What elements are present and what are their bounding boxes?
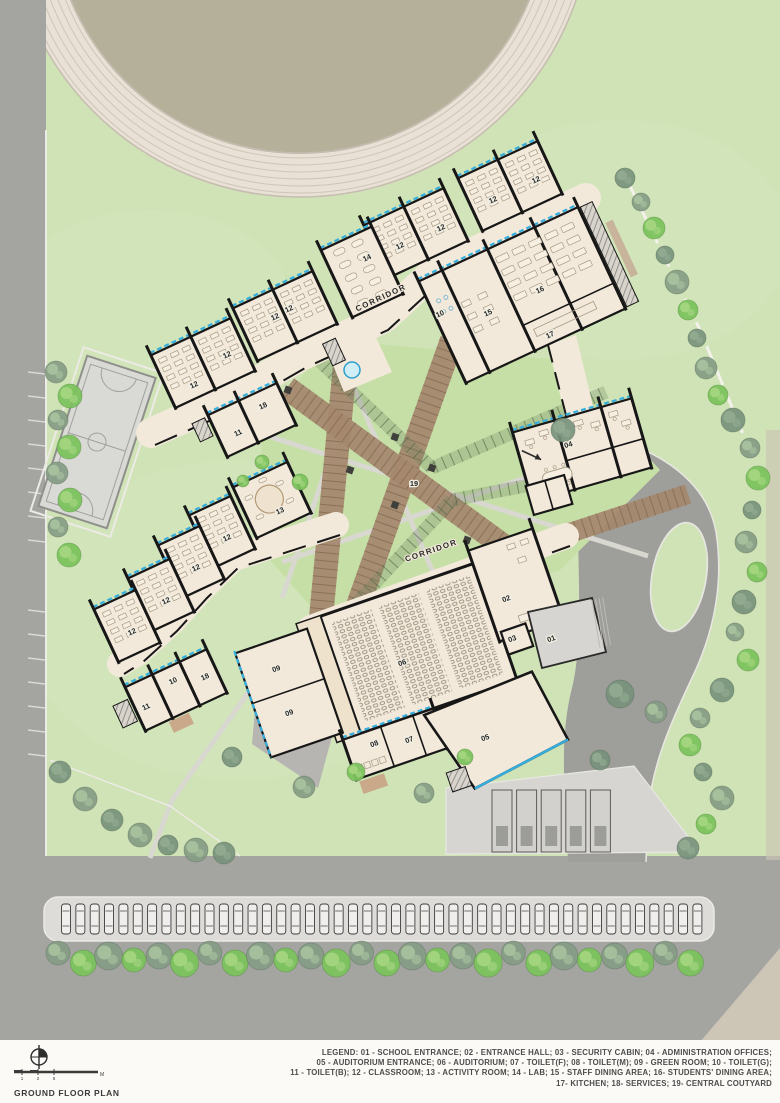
tree bbox=[374, 950, 400, 976]
car-body bbox=[592, 904, 601, 934]
tree-highlight bbox=[589, 959, 597, 967]
car-body bbox=[535, 904, 544, 934]
tree bbox=[708, 385, 728, 405]
car-body bbox=[90, 904, 99, 934]
car bbox=[621, 904, 630, 934]
car bbox=[435, 904, 444, 934]
legend-line: 11 - TOILET(B); 12 - CLASSROOM; 13 - ACT… bbox=[290, 1068, 772, 1078]
car bbox=[334, 904, 343, 934]
car-body bbox=[578, 904, 587, 934]
tree bbox=[45, 361, 67, 383]
car-body bbox=[521, 904, 530, 934]
car bbox=[650, 904, 659, 934]
tree-highlight bbox=[234, 962, 243, 971]
tree bbox=[626, 949, 654, 977]
tree-highlight bbox=[735, 631, 741, 637]
tree-highlight bbox=[718, 394, 725, 401]
tree bbox=[678, 300, 698, 320]
tree bbox=[615, 168, 635, 188]
car-body bbox=[162, 904, 171, 934]
tree-highlight bbox=[108, 955, 118, 965]
tree bbox=[46, 462, 68, 484]
car bbox=[176, 904, 185, 934]
tree bbox=[606, 680, 634, 708]
tree-highlight bbox=[462, 955, 471, 964]
tree bbox=[128, 823, 152, 847]
tree bbox=[695, 357, 717, 379]
car-body bbox=[191, 904, 200, 934]
tree bbox=[95, 942, 123, 970]
car bbox=[549, 904, 558, 934]
car-body bbox=[463, 904, 472, 934]
tree-highlight bbox=[690, 962, 699, 971]
tree-highlight bbox=[465, 756, 471, 762]
car-body bbox=[636, 904, 645, 934]
bus-bay-mark bbox=[594, 826, 606, 846]
tree bbox=[58, 488, 82, 512]
tan-edge-strip bbox=[766, 430, 780, 860]
car bbox=[62, 904, 71, 934]
tree bbox=[746, 466, 770, 490]
tree-highlight bbox=[757, 477, 765, 485]
tree bbox=[737, 649, 759, 671]
tree-highlight bbox=[437, 959, 445, 967]
tree-highlight bbox=[424, 792, 431, 799]
plan-title: GROUND FLOOR PLAN bbox=[14, 1088, 120, 1098]
car bbox=[478, 904, 487, 934]
site-plan-drawing: 1212121214121212121015161718111312121212… bbox=[0, 0, 780, 1042]
tree bbox=[426, 948, 450, 972]
car-body bbox=[119, 904, 128, 934]
tree-highlight bbox=[300, 481, 306, 487]
car-body bbox=[406, 904, 415, 934]
tree-highlight bbox=[285, 959, 293, 967]
car-body bbox=[248, 904, 257, 934]
tree-highlight bbox=[386, 962, 395, 971]
car bbox=[392, 904, 401, 934]
car-body bbox=[148, 904, 157, 934]
car bbox=[363, 904, 372, 934]
tree bbox=[665, 270, 689, 294]
car bbox=[277, 904, 286, 934]
tree bbox=[735, 531, 757, 553]
tree-highlight bbox=[700, 717, 707, 724]
car-body bbox=[176, 904, 185, 934]
tree-highlight bbox=[361, 952, 369, 960]
car-body bbox=[62, 904, 71, 934]
car-body bbox=[478, 904, 487, 934]
car-body bbox=[607, 904, 616, 934]
tree-highlight bbox=[56, 472, 64, 480]
car bbox=[420, 904, 429, 934]
car-body bbox=[262, 904, 271, 934]
tree bbox=[721, 408, 745, 432]
tree bbox=[298, 943, 324, 969]
tree-highlight bbox=[689, 744, 697, 752]
car bbox=[262, 904, 271, 934]
tree bbox=[679, 734, 701, 756]
tree bbox=[48, 410, 68, 430]
car bbox=[219, 904, 228, 934]
tree-highlight bbox=[743, 601, 751, 609]
car-body bbox=[449, 904, 458, 934]
tree bbox=[73, 787, 97, 811]
car bbox=[607, 904, 616, 934]
scale-segment bbox=[14, 1070, 22, 1073]
tree-highlight bbox=[59, 771, 67, 779]
car-body bbox=[420, 904, 429, 934]
car-body bbox=[664, 904, 673, 934]
car bbox=[291, 904, 300, 934]
tree bbox=[293, 776, 315, 798]
car-body bbox=[377, 904, 386, 934]
tree bbox=[198, 941, 222, 965]
tree bbox=[550, 942, 578, 970]
tree-highlight bbox=[133, 959, 141, 967]
tree bbox=[222, 747, 242, 767]
room-label-19: 19 bbox=[410, 479, 418, 488]
tree-highlight bbox=[688, 309, 695, 316]
tree-highlight bbox=[195, 849, 203, 857]
tree-highlight bbox=[68, 554, 76, 562]
car bbox=[90, 904, 99, 934]
tree-highlight bbox=[639, 962, 649, 972]
tree-highlight bbox=[600, 759, 607, 766]
car bbox=[105, 904, 114, 934]
car-body bbox=[392, 904, 401, 934]
car bbox=[320, 904, 329, 934]
car bbox=[535, 904, 544, 934]
car bbox=[506, 904, 515, 934]
tree-highlight bbox=[69, 499, 77, 507]
tree bbox=[710, 786, 734, 810]
tree bbox=[632, 193, 650, 211]
tree bbox=[690, 708, 710, 728]
tree-highlight bbox=[232, 756, 239, 763]
tree bbox=[101, 809, 123, 831]
car bbox=[693, 904, 702, 934]
scale-bar: 125M bbox=[12, 1066, 122, 1082]
tree-highlight bbox=[752, 509, 758, 515]
tree bbox=[457, 749, 473, 765]
tree bbox=[656, 246, 674, 264]
scale-segment bbox=[30, 1070, 38, 1073]
car bbox=[406, 904, 415, 934]
tree-highlight bbox=[57, 952, 65, 960]
car-body bbox=[549, 904, 558, 934]
tree-highlight bbox=[747, 659, 755, 667]
car-body bbox=[305, 904, 314, 934]
tree bbox=[645, 701, 667, 723]
car bbox=[449, 904, 458, 934]
car bbox=[592, 904, 601, 934]
tree-highlight bbox=[703, 771, 709, 777]
car bbox=[463, 904, 472, 934]
tree bbox=[732, 590, 756, 614]
tree-highlight bbox=[487, 962, 497, 972]
tree bbox=[688, 329, 706, 347]
tree bbox=[678, 950, 704, 976]
bus-bay-mark bbox=[496, 826, 508, 846]
tree bbox=[292, 474, 308, 490]
car-body bbox=[334, 904, 343, 934]
tree bbox=[255, 455, 269, 469]
tree-highlight bbox=[619, 693, 629, 703]
tree-highlight bbox=[209, 952, 217, 960]
scale-tick-label: 1 bbox=[21, 1076, 24, 1081]
tree-highlight bbox=[412, 955, 422, 965]
tree bbox=[57, 543, 81, 567]
tree-highlight bbox=[356, 771, 362, 777]
tree-highlight bbox=[625, 177, 632, 184]
tree bbox=[710, 678, 734, 702]
tree-highlight bbox=[310, 955, 319, 964]
tree bbox=[740, 438, 760, 458]
car bbox=[578, 904, 587, 934]
sheet-footer: 125M GROUND FLOOR PLAN LEGEND: 01 - SCHO… bbox=[0, 1040, 780, 1103]
tree bbox=[347, 763, 365, 781]
tree-highlight bbox=[757, 571, 764, 578]
legend-line: LEGEND: 01 - SCHOOL ENTRANCE; 02 - ENTRA… bbox=[290, 1048, 772, 1058]
tree-highlight bbox=[243, 480, 247, 484]
car bbox=[636, 904, 645, 934]
tree-highlight bbox=[562, 429, 570, 437]
tree-highlight bbox=[336, 962, 346, 972]
car bbox=[234, 904, 243, 934]
tree-highlight bbox=[223, 852, 231, 860]
car bbox=[679, 904, 688, 934]
tree-highlight bbox=[687, 847, 695, 855]
car bbox=[119, 904, 128, 934]
tree-highlight bbox=[58, 526, 65, 533]
tree-highlight bbox=[68, 446, 76, 454]
tree bbox=[171, 949, 199, 977]
tree-highlight bbox=[705, 367, 713, 375]
car bbox=[148, 904, 157, 934]
bus-bay-mark bbox=[570, 826, 582, 846]
tree-highlight bbox=[750, 447, 757, 454]
tree bbox=[694, 763, 712, 781]
tree-highlight bbox=[697, 337, 703, 343]
car bbox=[664, 904, 673, 934]
car bbox=[349, 904, 358, 934]
tree bbox=[450, 943, 476, 969]
scale-tick-label: 2 bbox=[37, 1076, 40, 1081]
tree-highlight bbox=[58, 419, 65, 426]
car bbox=[492, 904, 501, 934]
legend-block: LEGEND: 01 - SCHOOL ENTRANCE; 02 - ENTRA… bbox=[290, 1048, 772, 1089]
tree-highlight bbox=[84, 798, 92, 806]
tree-highlight bbox=[55, 371, 63, 379]
tree bbox=[246, 942, 274, 970]
tree-highlight bbox=[538, 962, 547, 971]
tree bbox=[696, 814, 716, 834]
tree bbox=[58, 384, 82, 408]
tree bbox=[474, 949, 502, 977]
tree-highlight bbox=[745, 541, 753, 549]
car bbox=[76, 904, 85, 934]
car-body bbox=[621, 904, 630, 934]
tree bbox=[590, 750, 610, 770]
car-body bbox=[133, 904, 142, 934]
tree-highlight bbox=[83, 962, 92, 971]
car-body bbox=[650, 904, 659, 934]
tree bbox=[46, 941, 70, 965]
bus-bay-mark bbox=[545, 826, 557, 846]
car-body bbox=[679, 904, 688, 934]
tree-highlight bbox=[513, 952, 521, 960]
tree bbox=[551, 418, 575, 442]
tree bbox=[158, 835, 178, 855]
tree-highlight bbox=[159, 955, 168, 964]
tree-highlight bbox=[184, 962, 194, 972]
tree bbox=[322, 949, 350, 977]
tree bbox=[57, 435, 81, 459]
tree bbox=[743, 501, 761, 519]
car bbox=[133, 904, 142, 934]
tree-highlight bbox=[641, 201, 647, 207]
tree-highlight bbox=[614, 955, 623, 964]
tree-highlight bbox=[139, 834, 147, 842]
car-body bbox=[492, 904, 501, 934]
tree-highlight bbox=[655, 711, 663, 719]
car-body bbox=[277, 904, 286, 934]
car-body bbox=[506, 904, 515, 934]
car-body bbox=[693, 904, 702, 934]
tree-highlight bbox=[303, 786, 311, 794]
tree-highlight bbox=[665, 952, 673, 960]
car-body bbox=[105, 904, 114, 934]
tree bbox=[146, 943, 172, 969]
tree bbox=[526, 950, 552, 976]
tree bbox=[274, 948, 298, 972]
car bbox=[564, 904, 573, 934]
tree-highlight bbox=[665, 254, 671, 260]
bus-bay-mark bbox=[521, 826, 533, 846]
car-body bbox=[363, 904, 372, 934]
tree bbox=[726, 623, 744, 641]
car-body bbox=[76, 904, 85, 934]
tree-highlight bbox=[168, 844, 175, 851]
car bbox=[248, 904, 257, 934]
car-body bbox=[349, 904, 358, 934]
tree-highlight bbox=[111, 819, 119, 827]
tree bbox=[653, 941, 677, 965]
car-body bbox=[320, 904, 329, 934]
tree bbox=[237, 475, 249, 487]
tree-highlight bbox=[721, 797, 729, 805]
tree-highlight bbox=[721, 689, 729, 697]
tree bbox=[213, 842, 235, 864]
tree-highlight bbox=[653, 227, 661, 235]
tree bbox=[414, 783, 434, 803]
tree-highlight bbox=[69, 395, 77, 403]
tree bbox=[677, 837, 699, 859]
car-body bbox=[435, 904, 444, 934]
water-feature bbox=[344, 362, 360, 378]
tree bbox=[398, 942, 426, 970]
car-body bbox=[234, 904, 243, 934]
tree bbox=[184, 838, 208, 862]
tree bbox=[350, 941, 374, 965]
tree bbox=[747, 562, 767, 582]
scale-tick-label: 5 bbox=[53, 1076, 56, 1081]
tree-highlight bbox=[260, 955, 270, 965]
car bbox=[205, 904, 214, 934]
car bbox=[162, 904, 171, 934]
tree bbox=[70, 950, 96, 976]
tree-highlight bbox=[706, 823, 713, 830]
car bbox=[377, 904, 386, 934]
tree bbox=[48, 517, 68, 537]
tree-highlight bbox=[676, 281, 684, 289]
car-body bbox=[205, 904, 214, 934]
tree bbox=[122, 948, 146, 972]
car-body bbox=[291, 904, 300, 934]
tree-highlight bbox=[732, 419, 740, 427]
tree bbox=[577, 948, 601, 972]
tree-highlight bbox=[262, 461, 267, 466]
legend-line: 17- KITCHEN; 18- SERVICES; 19- CENTRAL C… bbox=[290, 1079, 772, 1089]
tree bbox=[222, 950, 248, 976]
car-body bbox=[564, 904, 573, 934]
tree-highlight bbox=[563, 955, 573, 965]
car bbox=[305, 904, 314, 934]
tree bbox=[49, 761, 71, 783]
legend-line: 05 - AUDITORIUM ENTRANCE; 06 - AUDITORIU… bbox=[290, 1058, 772, 1068]
car bbox=[521, 904, 530, 934]
ground-floor-plan-sheet: 1212121214121212121015161718111312121212… bbox=[0, 0, 780, 1103]
tree bbox=[602, 943, 628, 969]
car-body bbox=[219, 904, 228, 934]
tree bbox=[643, 217, 665, 239]
car bbox=[191, 904, 200, 934]
tree bbox=[501, 941, 525, 965]
scale-unit-label: M bbox=[100, 1072, 104, 1078]
